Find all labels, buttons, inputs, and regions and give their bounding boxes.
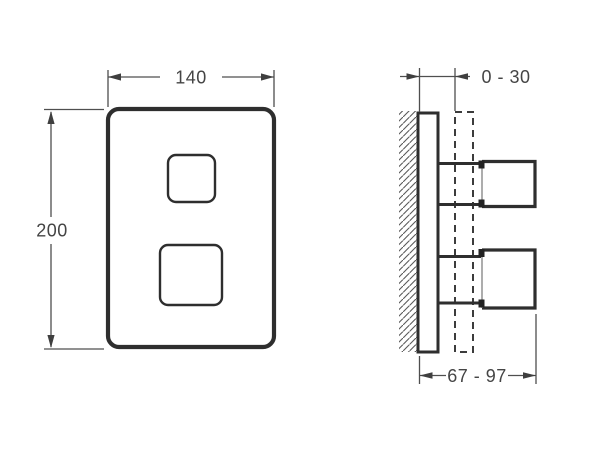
width-arrowhead-left [108,73,121,80]
side-view: 0 - 30 67 - 97 [399,67,536,386]
upper-knob-outline [482,162,535,207]
faceplate-outline [108,109,274,347]
offset-arrowhead-right [455,73,468,80]
height-dimension-label: 200 [36,221,68,241]
upper-valve-stem [438,164,481,205]
lower-knob-nub-top [479,249,485,257]
drawing-page: 140 200 [0,0,600,450]
front-view: 140 200 [36,68,274,350]
lower-knob-outline [482,250,535,308]
height-arrowhead-top [47,111,54,124]
width-dimension: 140 [108,68,274,108]
lower-valve-stem [438,257,481,304]
upper-handle-square [168,155,215,202]
upper-knob-nub-top [479,161,485,169]
width-arrowhead-right [261,73,274,80]
depth-dimension-label: 67 - 97 [447,366,507,386]
wall-offset-dimension: 0 - 30 [400,67,531,112]
upper-knob-profile [479,161,536,208]
lower-knob-profile [479,249,536,308]
depth-arrowhead-left [420,372,433,379]
lower-knob-nub-bottom [479,300,485,308]
wall-offset-dimension-label: 0 - 30 [481,67,530,87]
height-arrowhead-bottom [47,335,54,348]
width-dimension-label: 140 [175,68,207,88]
lower-handle-square [160,245,222,305]
upper-knob-nub-bottom [479,200,485,208]
faceplate-offset-dashed-outline [455,112,473,352]
depth-arrowhead-right [523,372,536,379]
height-dimension: 200 [36,110,104,350]
technical-drawing-canvas: 140 200 [0,0,600,450]
faceplate-profile [418,113,438,352]
offset-arrowhead-left [407,73,420,80]
wall-hatching [399,111,418,352]
